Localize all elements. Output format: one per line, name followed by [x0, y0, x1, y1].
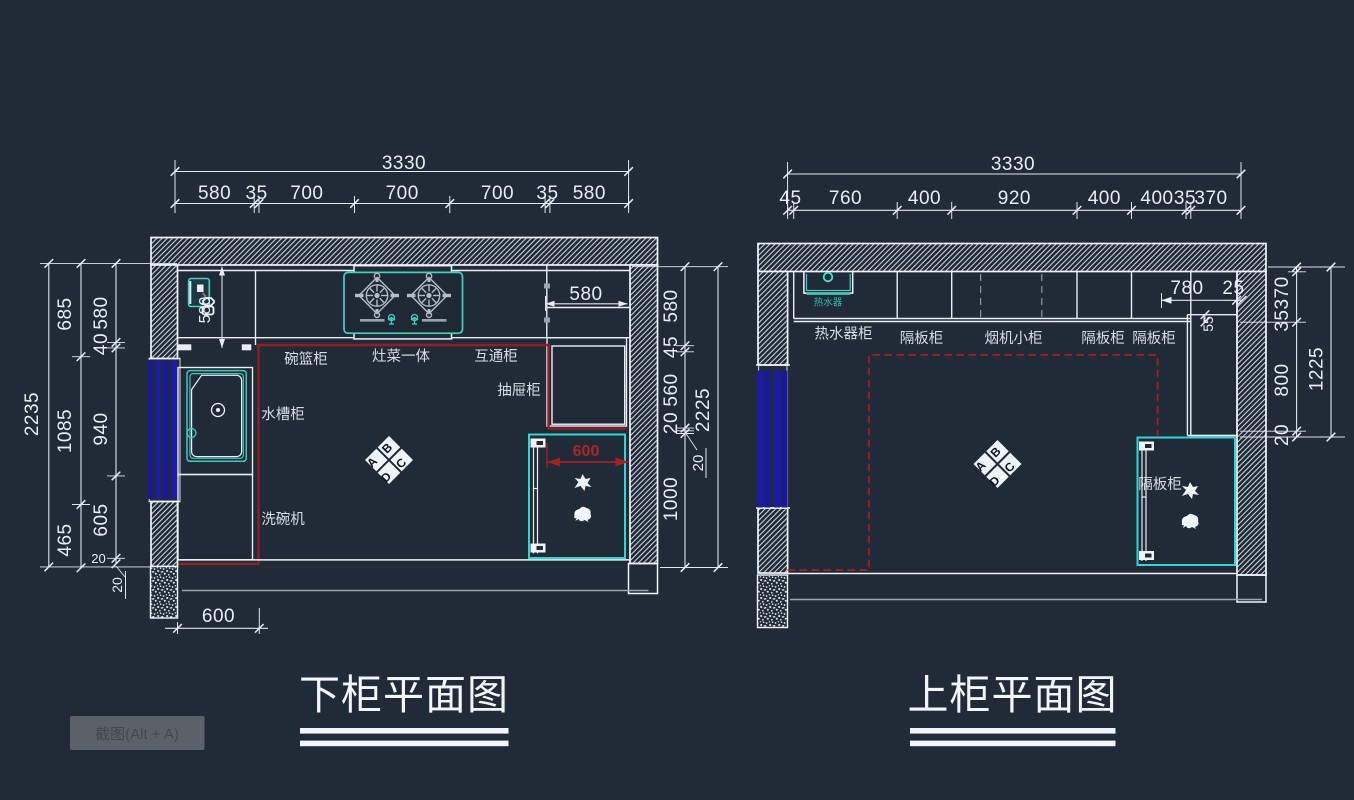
svg-text:灶菜一体: 灶菜一体 — [372, 348, 430, 365]
svg-text:400: 400 — [1140, 188, 1173, 209]
svg-text:1225: 1225 — [1307, 347, 1328, 391]
svg-text:烟机小柜: 烟机小柜 — [985, 330, 1043, 347]
svg-text:700: 700 — [481, 183, 514, 204]
svg-text:35370: 35370 — [1272, 276, 1293, 331]
svg-text:400: 400 — [908, 188, 941, 209]
svg-text:400: 400 — [1088, 188, 1121, 209]
svg-text:互通柜: 互通柜 — [474, 348, 518, 365]
svg-text:水槽柜: 水槽柜 — [261, 406, 305, 423]
svg-text:580: 580 — [661, 289, 682, 322]
svg-text:20: 20 — [661, 412, 682, 434]
svg-text:685: 685 — [55, 297, 76, 330]
svg-text:下柜平面图: 下柜平面图 — [299, 672, 509, 718]
svg-text:700: 700 — [290, 183, 323, 204]
svg-text:370: 370 — [1194, 188, 1227, 209]
svg-text:465: 465 — [55, 523, 76, 556]
svg-text:截图(Alt + A): 截图(Alt + A) — [95, 726, 179, 743]
svg-text:碗篮柜: 碗篮柜 — [284, 350, 328, 368]
svg-text:洗碗机: 洗碗机 — [261, 511, 305, 528]
svg-text:1085: 1085 — [55, 409, 76, 453]
svg-text:605: 605 — [91, 503, 112, 536]
svg-text:热水器柜: 热水器柜 — [815, 326, 873, 343]
svg-text:隔板柜: 隔板柜 — [1138, 475, 1182, 493]
svg-text:2225: 2225 — [693, 388, 714, 432]
svg-text:600: 600 — [202, 606, 235, 627]
svg-text:35: 35 — [1174, 188, 1196, 209]
svg-text:20: 20 — [109, 577, 125, 593]
svg-text:20: 20 — [91, 551, 105, 566]
svg-text:40: 40 — [91, 333, 112, 355]
svg-text:580: 580 — [91, 296, 112, 329]
svg-text:580: 580 — [569, 284, 602, 305]
svg-text:热水器: 热水器 — [814, 297, 843, 309]
svg-text:3330: 3330 — [382, 153, 426, 174]
svg-text:700: 700 — [386, 183, 419, 204]
svg-text:940: 940 — [91, 412, 112, 445]
svg-text:20: 20 — [1272, 424, 1293, 446]
svg-text:2235: 2235 — [22, 392, 43, 436]
svg-text:隔板柜: 隔板柜 — [900, 329, 944, 347]
svg-text:780: 780 — [1170, 278, 1203, 299]
svg-text:580: 580 — [198, 183, 231, 204]
svg-text:抽屉柜: 抽屉柜 — [497, 382, 541, 399]
svg-text:隔板柜: 隔板柜 — [1081, 329, 1125, 347]
svg-text:1000: 1000 — [661, 477, 682, 521]
svg-text:580: 580 — [573, 183, 606, 204]
svg-text:45: 45 — [661, 336, 682, 358]
svg-text:920: 920 — [998, 188, 1031, 209]
svg-text:560: 560 — [661, 373, 682, 406]
svg-text:25: 25 — [1222, 278, 1244, 299]
svg-text:800: 800 — [1272, 363, 1293, 396]
svg-text:580: 580 — [197, 297, 214, 324]
svg-text:760: 760 — [829, 188, 862, 209]
svg-text:20: 20 — [690, 455, 707, 472]
svg-text:3330: 3330 — [991, 154, 1035, 175]
svg-text:45: 45 — [779, 188, 801, 209]
svg-text:55: 55 — [1200, 316, 1216, 332]
svg-text:上柜平面图: 上柜平面图 — [908, 672, 1118, 718]
svg-text:600: 600 — [573, 443, 600, 460]
svg-text:隔板柜: 隔板柜 — [1132, 329, 1176, 347]
